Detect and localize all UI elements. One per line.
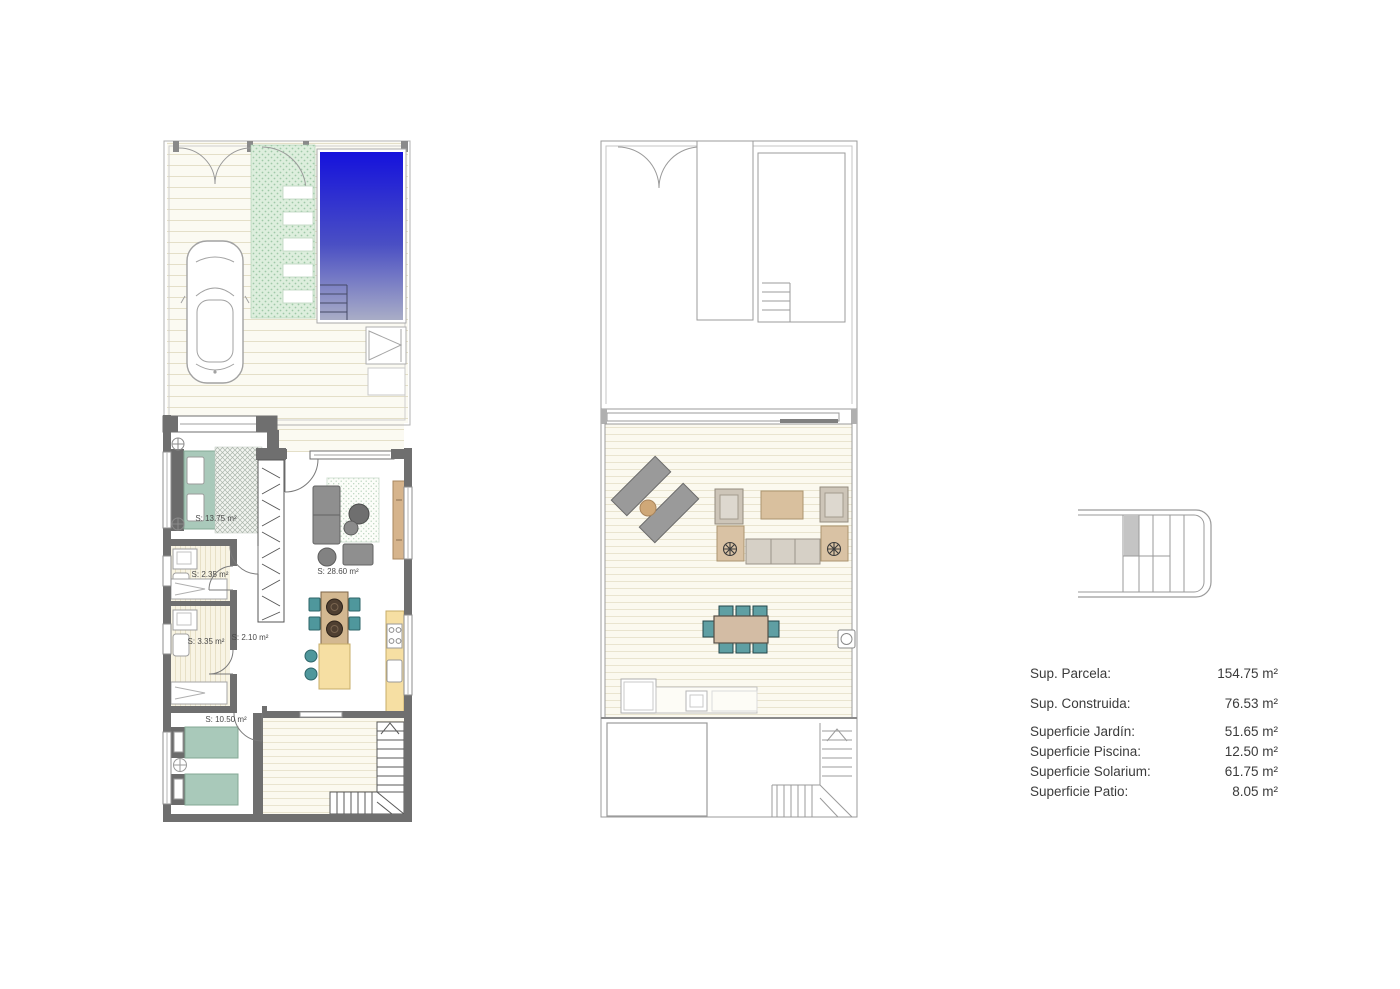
- wall-bottom: [163, 814, 412, 822]
- side-table-round: [640, 500, 656, 516]
- floorplan-page: S: 13.75 m² S: 2.35 m² S: 3.35 m² S: 2.1…: [0, 0, 1400, 989]
- room-label-hall: S: 2.10 m²: [232, 633, 269, 642]
- solarium-area: [758, 153, 845, 322]
- summary-label: Sup. Parcela:: [1030, 666, 1111, 682]
- room-label-master: S: 13.75 m²: [195, 514, 237, 523]
- pillow: [174, 779, 183, 799]
- pouf: [318, 548, 336, 566]
- room-label-bath1: S: 2.35 m²: [192, 570, 229, 579]
- dining-table: [714, 616, 768, 643]
- summary-value: 51.65 m²: [1225, 724, 1278, 740]
- kitchen-sink: [387, 660, 402, 682]
- terrace-floor: [605, 424, 852, 718]
- summary-value: 76.53 m²: [1225, 696, 1278, 712]
- sink: [686, 691, 707, 711]
- wall-light-symbol: [174, 759, 187, 772]
- ground-floor-plan: S: 13.75 m² S: 2.35 m² S: 3.35 m² S: 2.1…: [163, 141, 412, 822]
- side-table: [344, 521, 358, 535]
- summary-value: 8.05 m²: [1232, 784, 1278, 800]
- summary-label: Sup. Construida:: [1030, 696, 1131, 712]
- armchair-cushion: [825, 493, 843, 517]
- summary-row-construida: Sup. Construida: 76.53 m²: [1030, 696, 1278, 712]
- single-bed: [185, 727, 238, 758]
- wall-column-circle: [841, 634, 852, 645]
- summary-row-parcela: Sup. Parcela: 154.75 m²: [1030, 666, 1278, 682]
- room-label-bath2: S: 3.35 m²: [188, 637, 225, 646]
- pillow: [187, 457, 204, 484]
- interior-stairs: [256, 448, 286, 622]
- stool: [305, 668, 317, 680]
- coffee-table: [761, 491, 803, 519]
- plot-locator-icon: [1078, 510, 1211, 597]
- summary-label: Superficie Jardín:: [1030, 724, 1135, 740]
- summary-value: 61.75 m²: [1225, 764, 1278, 780]
- parked-car: [181, 241, 249, 383]
- summary-row-jardin: Superficie Jardín: 51.65 m²: [1030, 724, 1278, 740]
- armchair-cushion: [720, 495, 738, 519]
- summary-value: 12.50 m²: [1225, 744, 1278, 760]
- swimming-pool: [320, 152, 403, 320]
- garden-storage-box: [368, 368, 405, 395]
- fan-symbol: [828, 543, 841, 556]
- lower-room: [607, 723, 707, 816]
- tv-sideboard: [393, 481, 405, 559]
- pillow: [174, 732, 183, 752]
- summary-label: Superficie Piscina:: [1030, 744, 1141, 760]
- stool: [305, 650, 317, 662]
- place-setting: [327, 599, 343, 615]
- kitchen-island: [319, 644, 350, 689]
- single-bed: [185, 774, 238, 805]
- room-label-bedroom2: S: 10.50 m²: [205, 715, 247, 724]
- sofa: [746, 539, 820, 564]
- surface-summary: Sup. Parcela: 154.75 m² Sup. Construida:…: [1030, 666, 1278, 804]
- summary-row-piscina: Superficie Piscina: 12.50 m²: [1030, 744, 1278, 760]
- summary-row-patio: Superficie Patio: 8.05 m²: [1030, 784, 1278, 800]
- floor-plan-drawing: S: 13.75 m² S: 2.35 m² S: 3.35 m² S: 2.1…: [0, 0, 1400, 989]
- summary-label: Superficie Patio:: [1030, 784, 1128, 800]
- fan-symbol: [724, 543, 737, 556]
- garden-area: [164, 141, 410, 452]
- armchair: [343, 544, 373, 565]
- summary-row-solarium: Superficie Solarium: 61.75 m²: [1030, 764, 1278, 780]
- summary-value: 154.75 m²: [1217, 666, 1278, 682]
- upper-floor-plan: [601, 141, 857, 817]
- place-setting: [327, 621, 343, 637]
- garden-deck-extension: [277, 423, 404, 452]
- locator-highlighted-unit: [1124, 515, 1139, 556]
- patio-void: [697, 141, 753, 320]
- room-label-living: S: 28.60 m²: [317, 567, 359, 576]
- summary-label: Superficie Solarium:: [1030, 764, 1151, 780]
